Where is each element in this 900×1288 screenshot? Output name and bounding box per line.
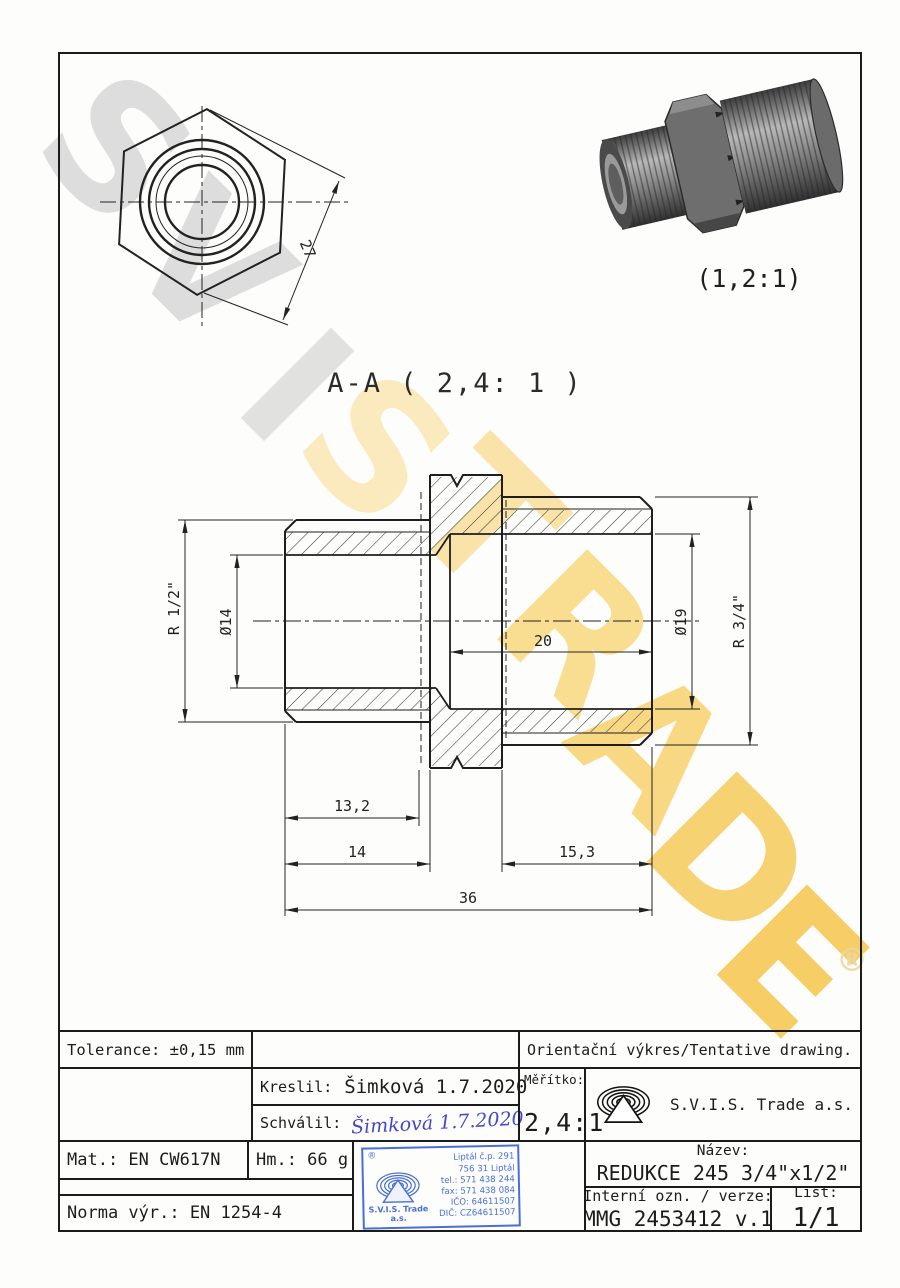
weight-text: Hm.: 66 g <box>256 1150 348 1170</box>
company-cell: S.V.I.S. Trade a.s. <box>584 1067 862 1142</box>
material-text: Mat.: EN CW617N <box>67 1150 221 1170</box>
drawing-sheet: S V I S T R A D E ® <box>0 0 900 1288</box>
schvalil-signature: Šimková 1.7.2020 <box>351 1107 525 1138</box>
norma-text: Norma výr.: EN 1254-4 <box>67 1203 282 1223</box>
scale-cell: Měřítko: 2,4:1 <box>518 1067 586 1142</box>
kreslil-label: Kreslil: <box>260 1078 332 1096</box>
orientation-note-cell: Orientační výkres/Tentative drawing. <box>518 1030 862 1069</box>
nazev-label: Název: <box>697 1143 749 1159</box>
registered-trademark-icon: ® <box>367 1151 376 1161</box>
schvalil-cell: Schválil: Šimková 1.7.2020 <box>251 1104 520 1142</box>
svis-logo-icon <box>371 1170 426 1207</box>
nazev-value: REDUKCE 245 3/4"x1/2" <box>597 1161 850 1185</box>
interni-label: Interní ozn. / verze: <box>583 1187 773 1205</box>
norma-cell: Norma výr.: EN 1254-4 <box>58 1194 354 1232</box>
empty-cell <box>251 1030 520 1069</box>
tolerance-text: Tolerance: ±0,15 mm <box>67 1041 244 1059</box>
orientation-note-text: Orientační výkres/Tentative drawing. <box>527 1041 852 1059</box>
scale-label: Měřítko: <box>524 1072 584 1087</box>
stamp-logo-block: S.V.I.S. Trade a.s. <box>366 1150 430 1225</box>
svis-logo-icon <box>593 1082 654 1128</box>
stamp-address-line: DIČ: CZ64611507 <box>429 1208 515 1221</box>
weight-cell: Hm.: 66 g <box>247 1140 354 1180</box>
empty-cell <box>58 1067 253 1142</box>
nazev-cell: Název: REDUKCE 245 3/4"x1/2" <box>584 1140 862 1188</box>
tolerance-cell: Tolerance: ±0,15 mm <box>58 1030 253 1069</box>
stamp-address: Liptál č.p. 291 756 31 Liptál tel.: 571 … <box>428 1148 516 1224</box>
kreslil-cell: Kreslil: Šimková 1.7.2020 <box>251 1067 520 1106</box>
material-cell: Mat.: EN CW617N <box>58 1140 249 1180</box>
interni-value: MMG 2453412 v.1 <box>583 1207 773 1231</box>
kreslil-value: Šimková 1.7.2020 <box>344 1076 527 1098</box>
list-label: List: <box>794 1185 838 1201</box>
list-value: 1/1 <box>793 1203 840 1233</box>
list-cell: List: 1/1 <box>770 1186 862 1232</box>
company-stamp: ® S.V.I.S. Trade a.s. Liptál č.p. 291 75… <box>361 1144 521 1229</box>
schvalil-label: Schválil: <box>260 1114 341 1132</box>
interni-cell: Interní ozn. / verze: MMG 2453412 v.1 <box>584 1186 772 1232</box>
company-name: S.V.I.S. Trade a.s. <box>670 1095 853 1114</box>
stamp-company-suffix: a.s. <box>390 1214 406 1223</box>
